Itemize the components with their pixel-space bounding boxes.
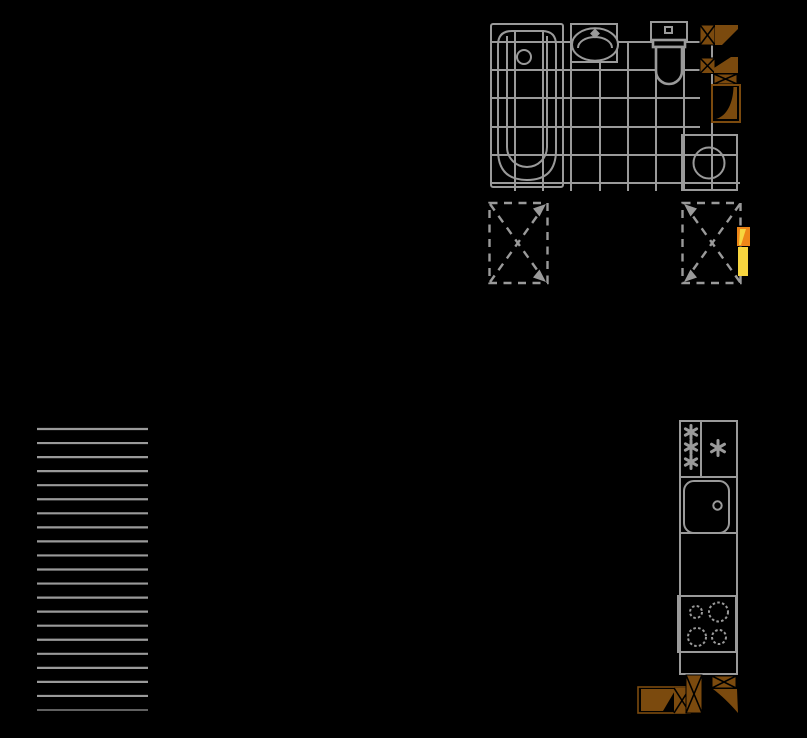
staircase [37, 429, 148, 710]
fridge-freezer [685, 421, 724, 477]
snowflake-icon [685, 456, 696, 469]
stove [678, 596, 736, 652]
snowflake-icon [685, 426, 696, 439]
burner [690, 606, 702, 618]
door-leaf [713, 689, 738, 713]
washbasin [571, 24, 618, 62]
bathtub [491, 24, 563, 187]
door-leaf [715, 25, 738, 45]
bathroom-door-lower [700, 57, 740, 122]
vent-shaft-right [683, 203, 741, 283]
toilet-bowl [656, 47, 682, 84]
arrowhead-icon [684, 270, 697, 283]
kitchen-door-left [638, 687, 690, 713]
toilet [651, 22, 687, 84]
toilet-cistern [651, 22, 687, 40]
burner [688, 628, 706, 646]
kitchen-sink [684, 481, 729, 533]
door-leaf [714, 57, 738, 73]
kitchen-door-middle [686, 675, 702, 713]
bathtub-drain [517, 50, 531, 64]
arrowhead-icon [533, 270, 546, 283]
burner [709, 603, 728, 622]
snowflake-icon [712, 441, 725, 456]
snowflake-icon [685, 441, 696, 454]
arrowhead-icon [684, 204, 697, 217]
bathroom-door-upper [700, 25, 738, 45]
floorplan-canvas [0, 0, 807, 738]
floorplan-drawing [0, 0, 807, 738]
radiator [737, 227, 750, 276]
washing-machine-drum [694, 148, 725, 179]
kitchen-door-right [712, 676, 738, 713]
burner [712, 630, 726, 644]
washing-machine [682, 135, 737, 190]
vent-shaft-left [490, 203, 548, 283]
arrowhead-icon [533, 204, 546, 217]
radiator-lower-segment [738, 247, 748, 276]
kitchen-unit [678, 421, 737, 674]
sink-drain [713, 501, 721, 509]
